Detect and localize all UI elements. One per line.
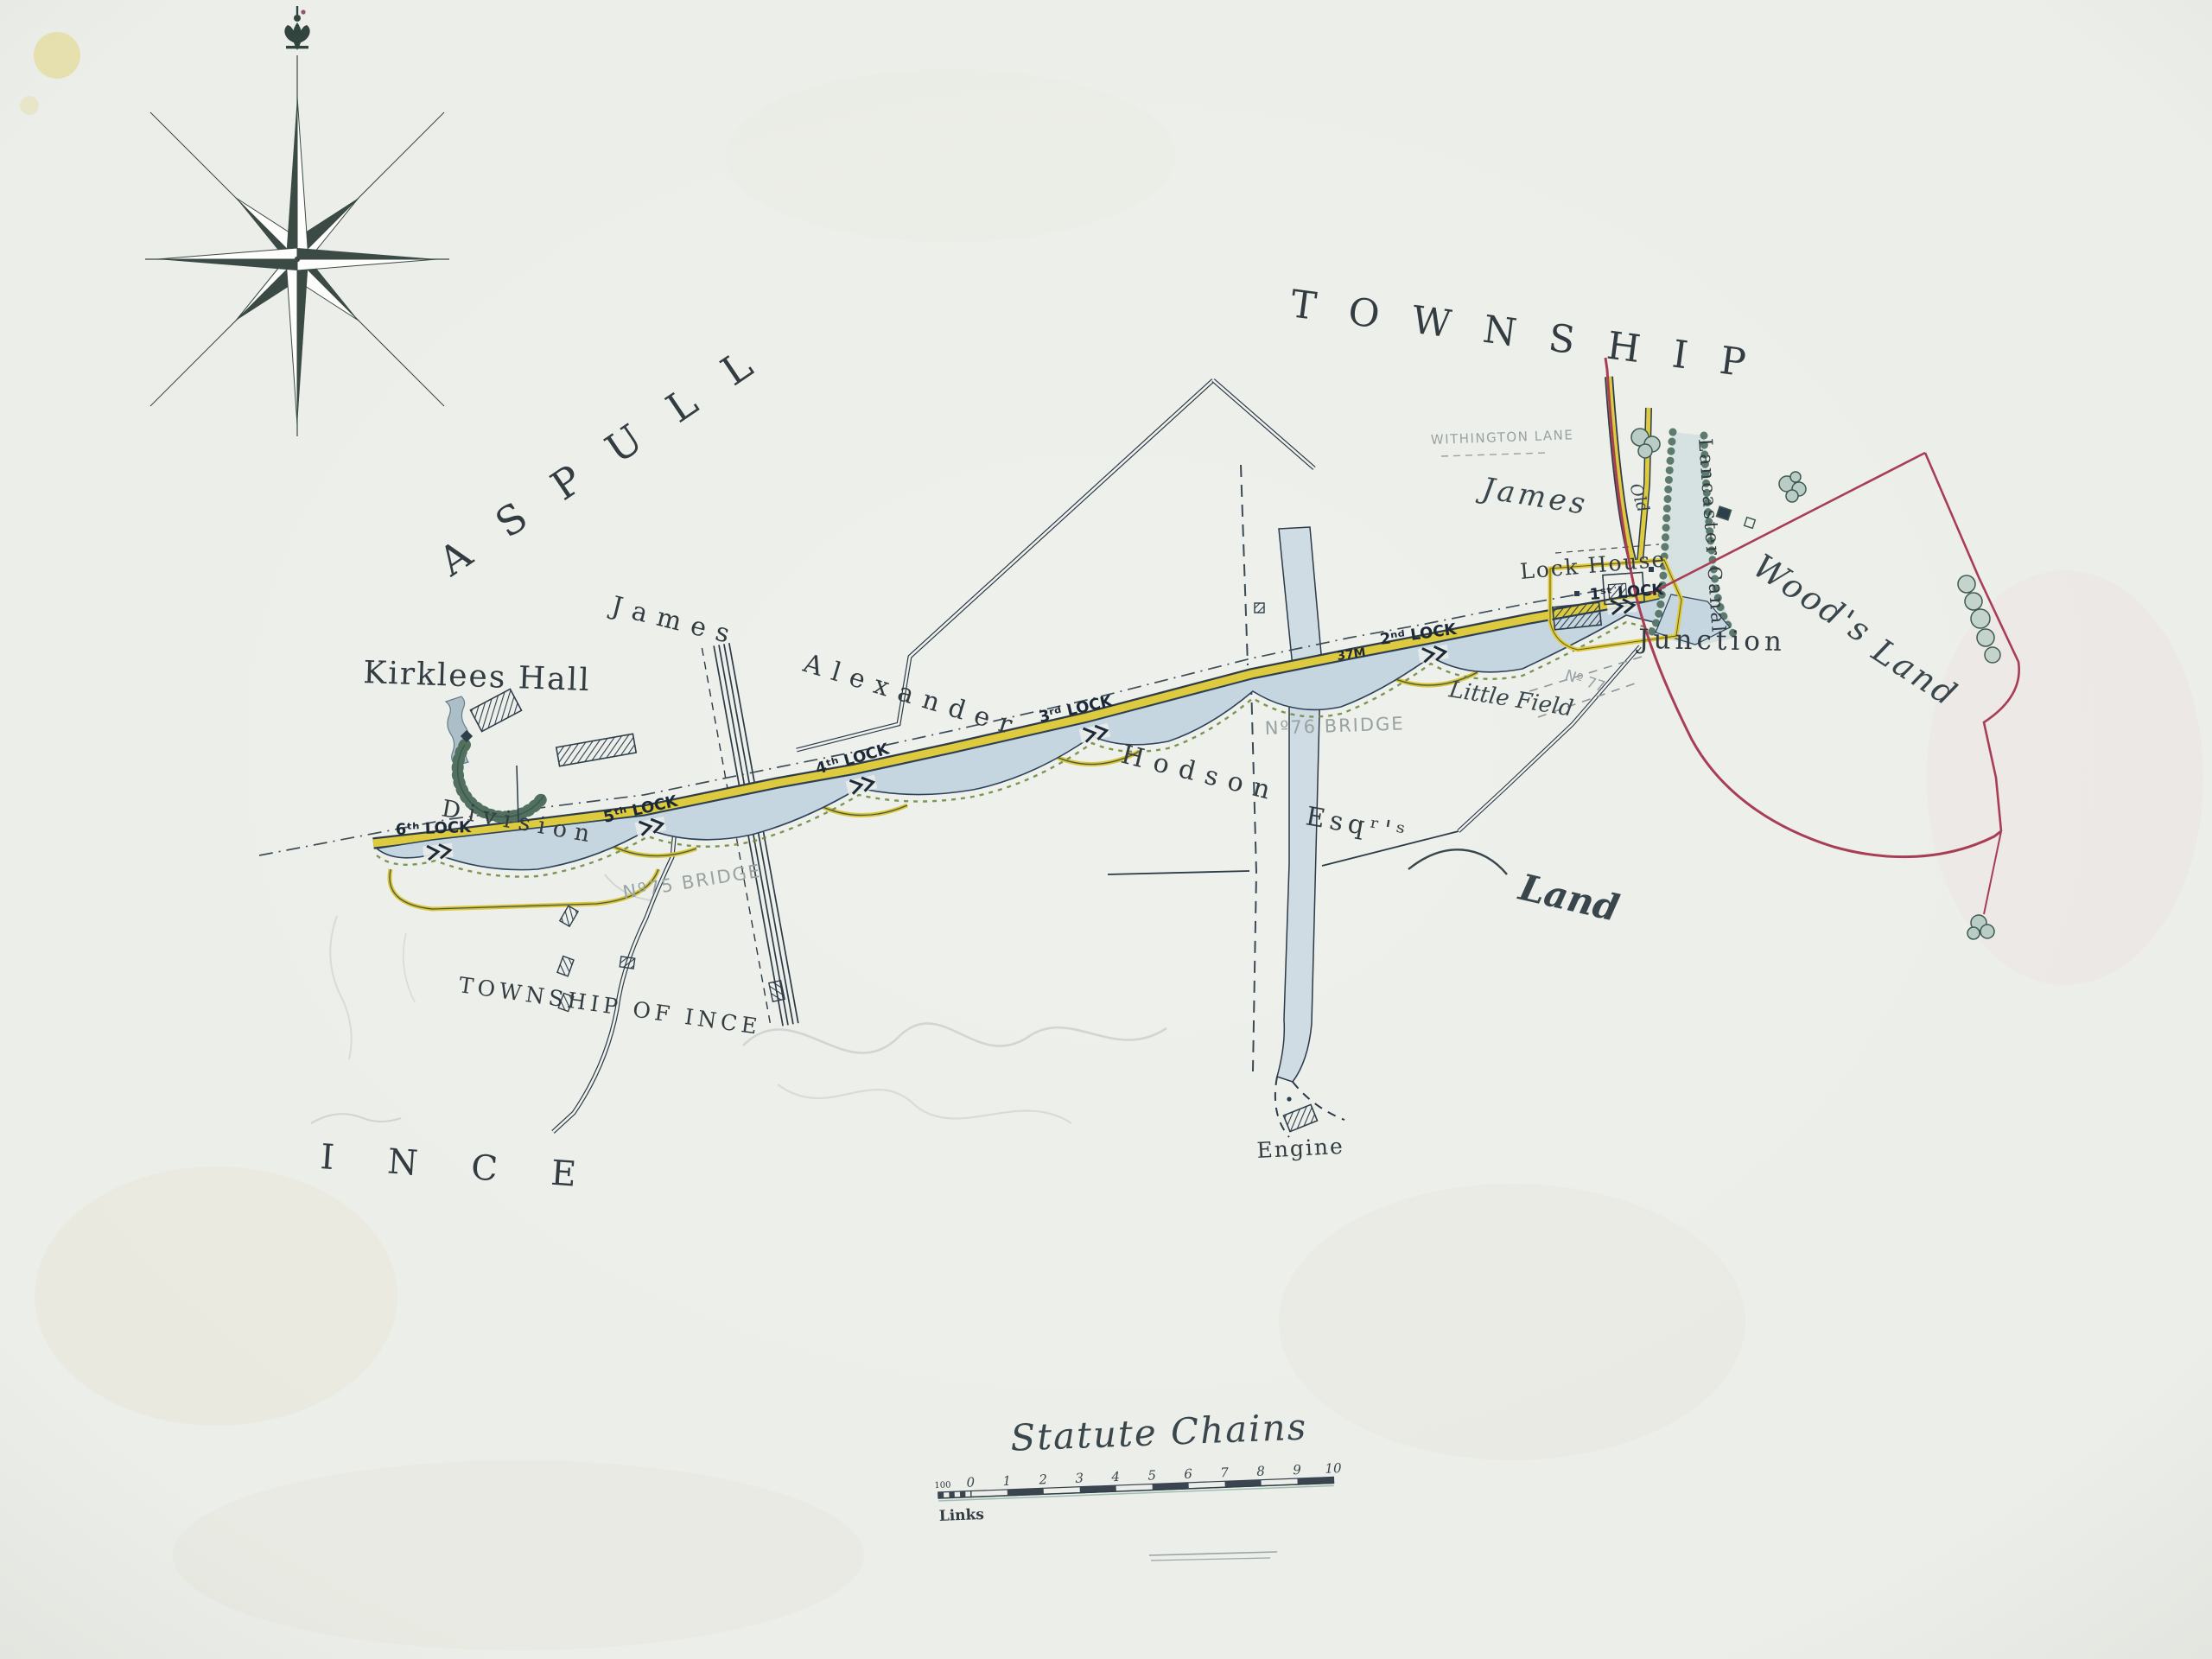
label-lock-6: 6ᵗʰ LOCK	[395, 818, 472, 839]
scale-tick: 3	[1075, 1471, 1084, 1486]
building	[1255, 603, 1264, 613]
scale-tick: 6	[1184, 1466, 1193, 1482]
scale-tick: 10	[1325, 1460, 1342, 1477]
paper-background	[0, 0, 2212, 1659]
map-canvas: TOWNSHIP ASPULL INCE TOWNSHIP OF INCE Ja…	[0, 0, 2212, 1659]
scale-tick: 5	[1147, 1467, 1156, 1483]
scale-tick: 4	[1110, 1469, 1120, 1484]
scale-links-label: Links	[938, 1506, 984, 1525]
map-sheet: TOWNSHIP ASPULL INCE TOWNSHIP OF INCE Ja…	[0, 0, 2212, 1659]
scale-tick: 2	[1038, 1471, 1047, 1487]
scale-tick: 7	[1220, 1465, 1230, 1480]
label-engine: Engine	[1256, 1134, 1345, 1163]
scale-tick: 8	[1256, 1463, 1265, 1478]
scale-tick: 9	[1293, 1462, 1302, 1478]
scale-tick: 1	[1002, 1473, 1011, 1489]
scale-hundred: 100	[934, 1480, 951, 1491]
scale-tick: 0	[966, 1474, 976, 1490]
